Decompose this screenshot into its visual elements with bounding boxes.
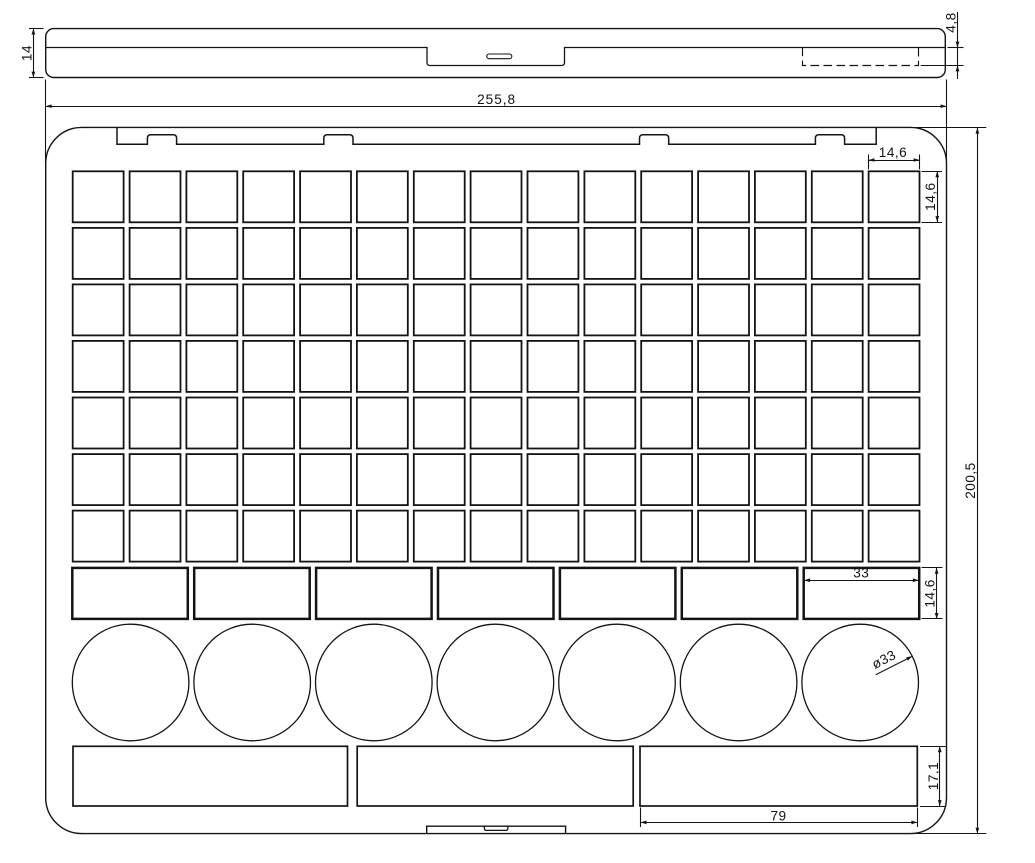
svg-text:14: 14 xyxy=(20,45,35,61)
svg-text:14,6: 14,6 xyxy=(879,145,907,160)
svg-text:200,5: 200,5 xyxy=(963,462,978,499)
svg-text:17,1: 17,1 xyxy=(926,762,941,790)
svg-text:14,6: 14,6 xyxy=(923,579,938,607)
svg-text:4,8: 4,8 xyxy=(943,12,958,32)
svg-text:255,8: 255,8 xyxy=(477,92,516,107)
svg-text:79: 79 xyxy=(770,809,786,824)
svg-text:14,6: 14,6 xyxy=(923,182,938,210)
svg-text:33: 33 xyxy=(853,565,869,580)
